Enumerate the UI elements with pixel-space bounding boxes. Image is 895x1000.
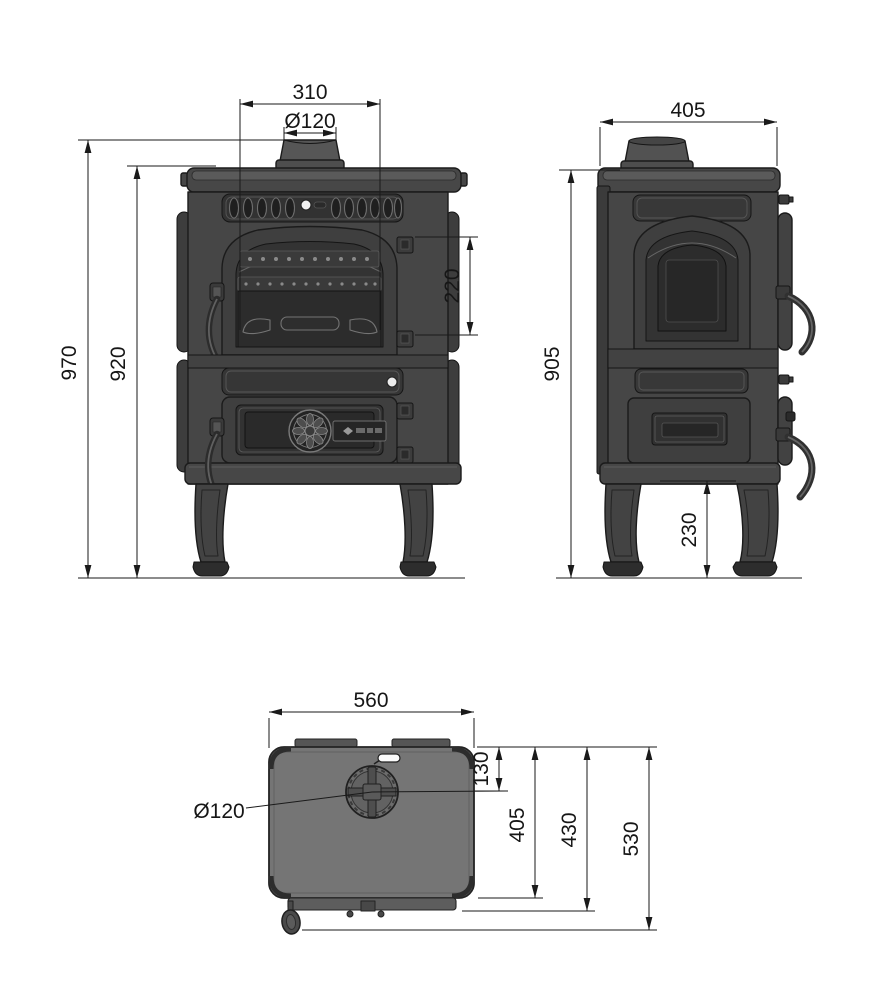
ash-door (222, 397, 397, 463)
air-control-rosette (289, 410, 331, 452)
dim-label-front-flue: Ø120 (284, 110, 335, 133)
dim-label-top-depth-plate: 405 (506, 807, 529, 842)
top-view (269, 739, 474, 935)
dim-label-front-width: 310 (292, 81, 327, 104)
dim-label-side-depth: 405 (670, 99, 705, 122)
latch-knob (387, 377, 397, 387)
leg-front-right (400, 484, 436, 576)
latch-pin-lower (779, 375, 793, 384)
dim-label-side-height: 905 (541, 346, 564, 381)
dim-label-front-height-total: 970 (58, 345, 81, 380)
hinge-upper-bottom (397, 331, 413, 347)
front-view (177, 140, 467, 576)
leg-side-left (603, 484, 643, 576)
stove-dimension-drawing: 310 Ø120 970 920 220 (0, 0, 895, 1000)
mid-band-side (608, 349, 778, 368)
hinge-lower-bottom (397, 447, 413, 463)
dim-label-top-flue: Ø120 (193, 800, 244, 823)
air-vent-grille (222, 194, 403, 222)
vent-pivot-knob (301, 200, 311, 210)
side-lower-panel (628, 398, 750, 463)
back-edge-tabs (295, 739, 450, 747)
brand-lettering (356, 428, 382, 433)
top-plate-front (181, 168, 467, 192)
mid-band (188, 355, 448, 368)
dim-label-top-flue-offset: 130 (470, 751, 493, 786)
dim-label-top-width: 560 (353, 689, 388, 712)
damper-handle (378, 754, 400, 762)
dim-label-side-leg-height: 230 (678, 512, 701, 547)
leg-front-left (193, 484, 229, 576)
top-plate-side (598, 168, 780, 192)
dimension-front-flue: Ø120 (284, 110, 336, 141)
hinge-lower-top (397, 403, 413, 419)
firebox-door (222, 227, 397, 356)
base-plinth-front (185, 463, 461, 484)
flue-pipe-side (621, 137, 693, 172)
leg-side-right (733, 484, 778, 576)
dim-label-top-depth-total: 530 (620, 821, 643, 856)
ash-lip-strip (222, 368, 403, 395)
side-view (597, 137, 812, 576)
dim-label-front-hinge-span: 220 (441, 268, 464, 303)
brand-emblem (333, 421, 386, 441)
side-lower-strip (635, 369, 748, 393)
dim-label-front-height-body: 920 (107, 346, 130, 381)
latch-pin-upper (779, 195, 793, 204)
dimension-side-leg-height: 230 (660, 481, 736, 578)
hinge-upper-top (397, 237, 413, 253)
side-arch-panel (634, 216, 750, 349)
dim-label-top-depth-body: 430 (558, 812, 581, 847)
door-edge-upper (778, 213, 792, 350)
stove-technical-drawing-page: 310 Ø120 970 920 220 (0, 0, 895, 1000)
dimension-top-flue-offset: 130 (470, 747, 508, 791)
front-edge-strip (288, 898, 456, 917)
